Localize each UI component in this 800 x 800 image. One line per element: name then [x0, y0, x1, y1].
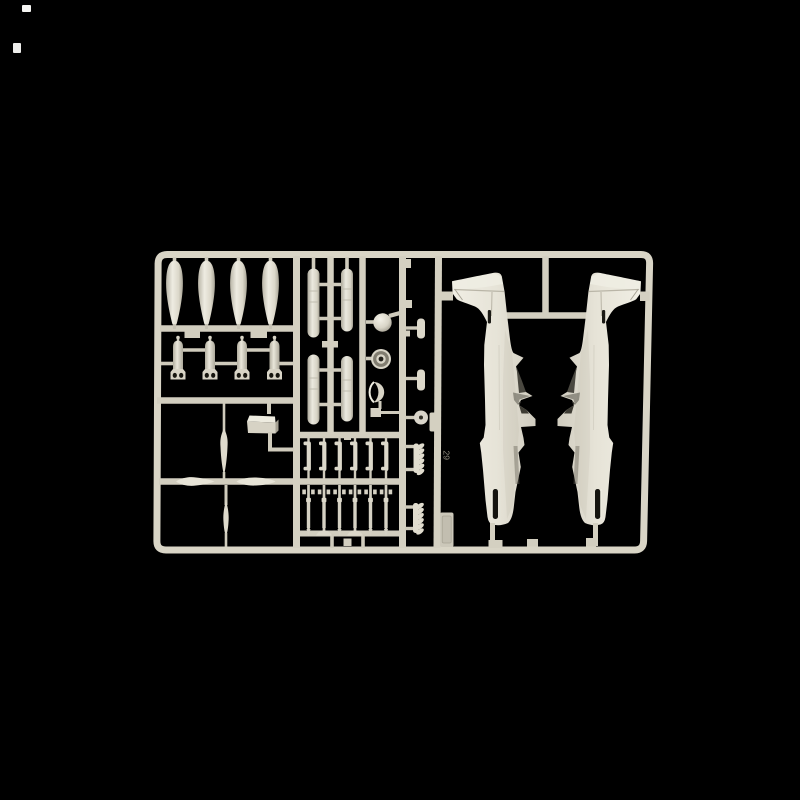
svg-text:29: 29	[442, 451, 452, 461]
